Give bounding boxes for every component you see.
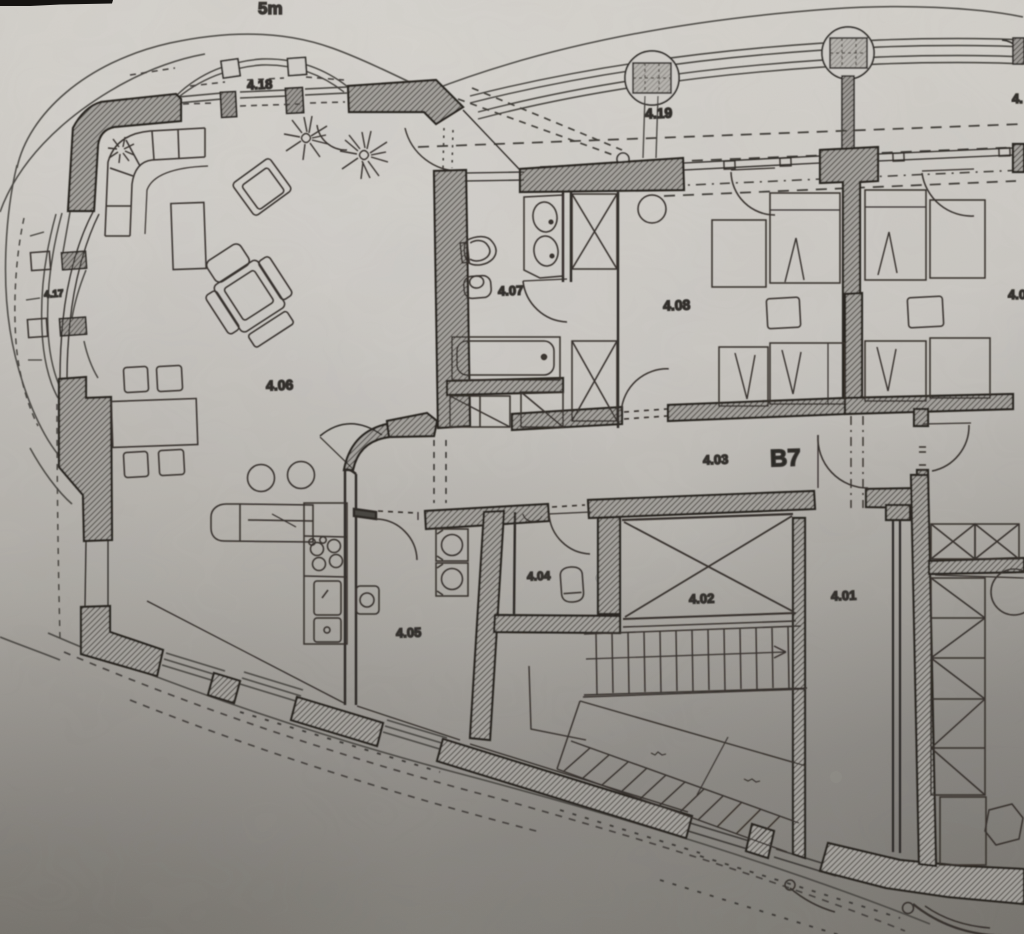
svg-text:4.06: 4.06 — [266, 377, 294, 394]
svg-text:4.17: 4.17 — [44, 288, 65, 300]
svg-text:4.03: 4.03 — [703, 452, 729, 468]
svg-text:4.02: 4.02 — [689, 591, 715, 607]
svg-text:B7: B7 — [770, 444, 802, 472]
svg-text:4.: 4. — [1012, 91, 1023, 106]
svg-text:4.04: 4.04 — [527, 569, 551, 584]
svg-text:4.01: 4.01 — [831, 588, 857, 604]
svg-text:4.19: 4.19 — [645, 105, 673, 122]
svg-text:4.18: 4.18 — [247, 76, 273, 92]
svg-text:4.0: 4.0 — [1008, 287, 1024, 302]
svg-text:4.05: 4.05 — [396, 625, 422, 641]
svg-text:5m: 5m — [258, 0, 283, 18]
svg-text:4.08: 4.08 — [663, 297, 691, 314]
svg-text:4.07: 4.07 — [498, 283, 524, 299]
